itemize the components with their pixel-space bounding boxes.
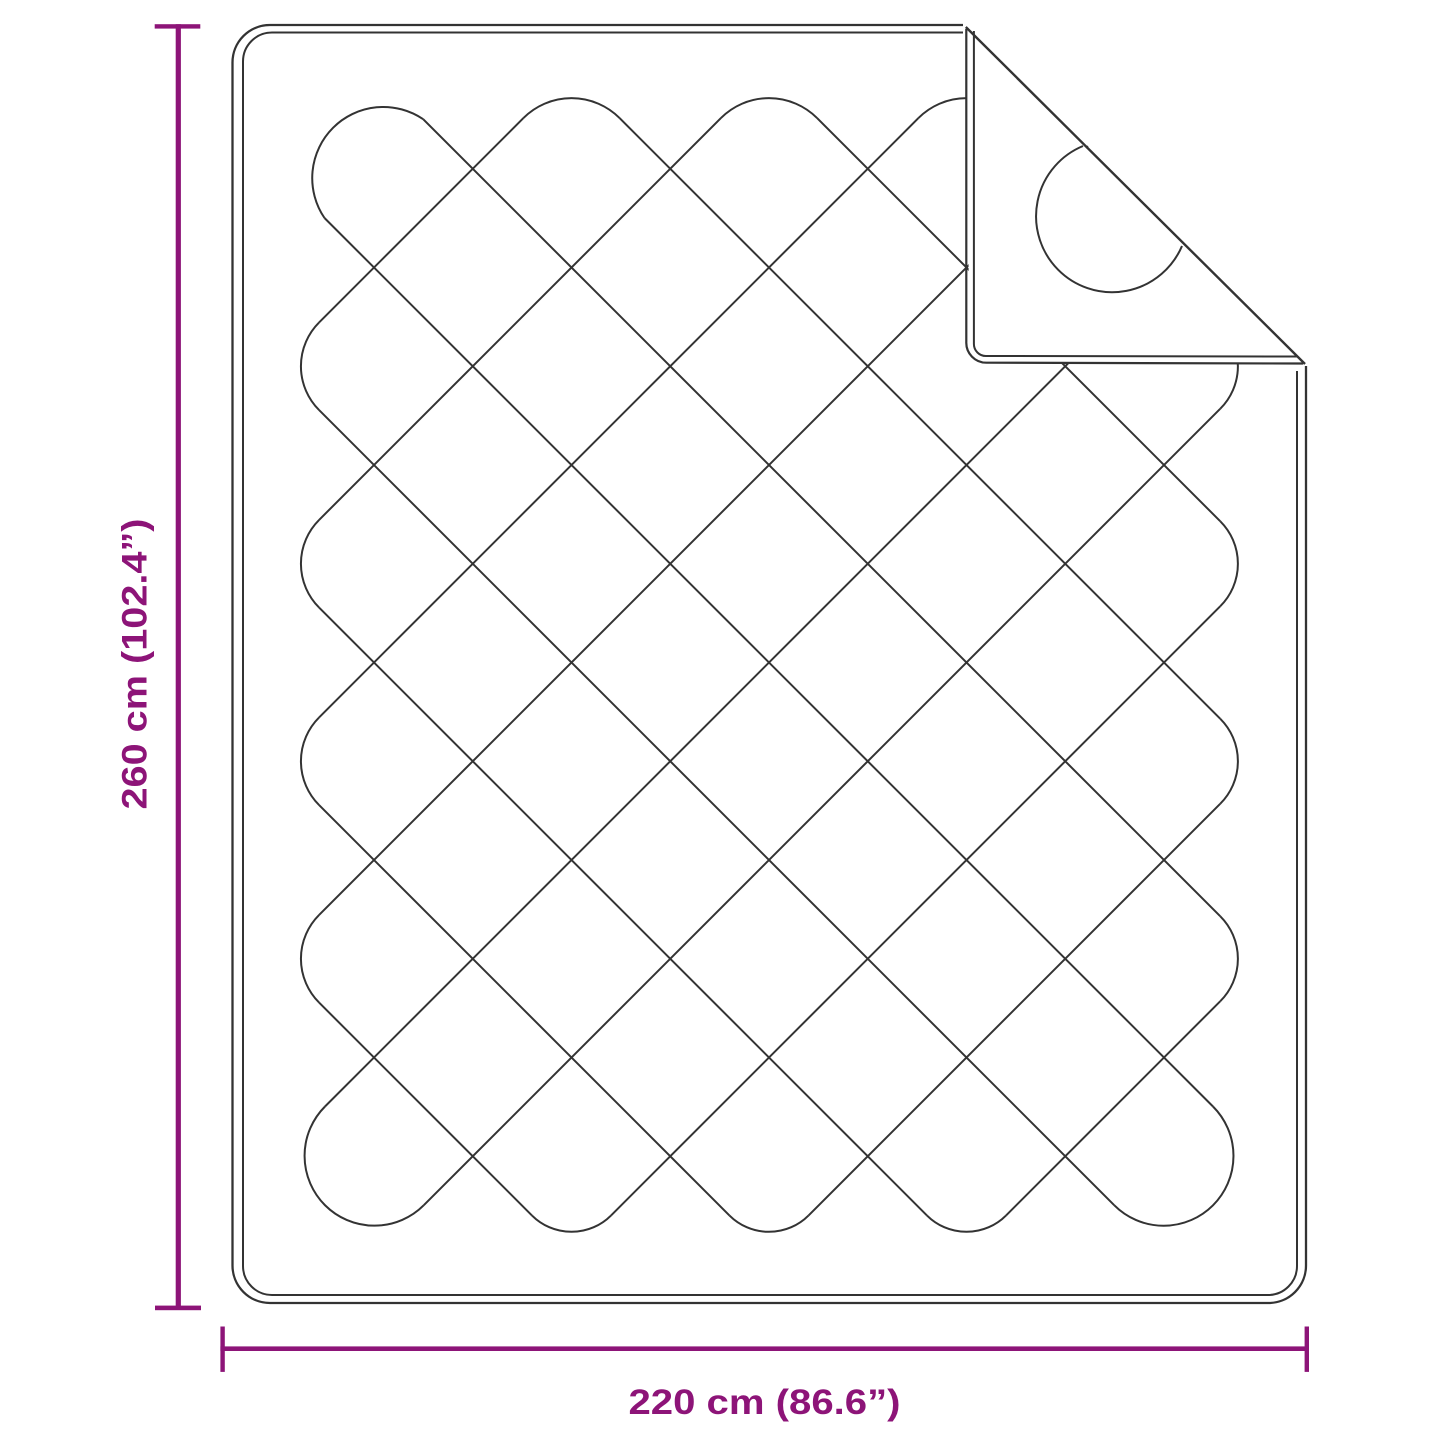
- svg-text:220 cm (86.6”): 220 cm (86.6”): [629, 1382, 901, 1422]
- svg-text:260 cm (102.4”): 260 cm (102.4”): [115, 519, 155, 810]
